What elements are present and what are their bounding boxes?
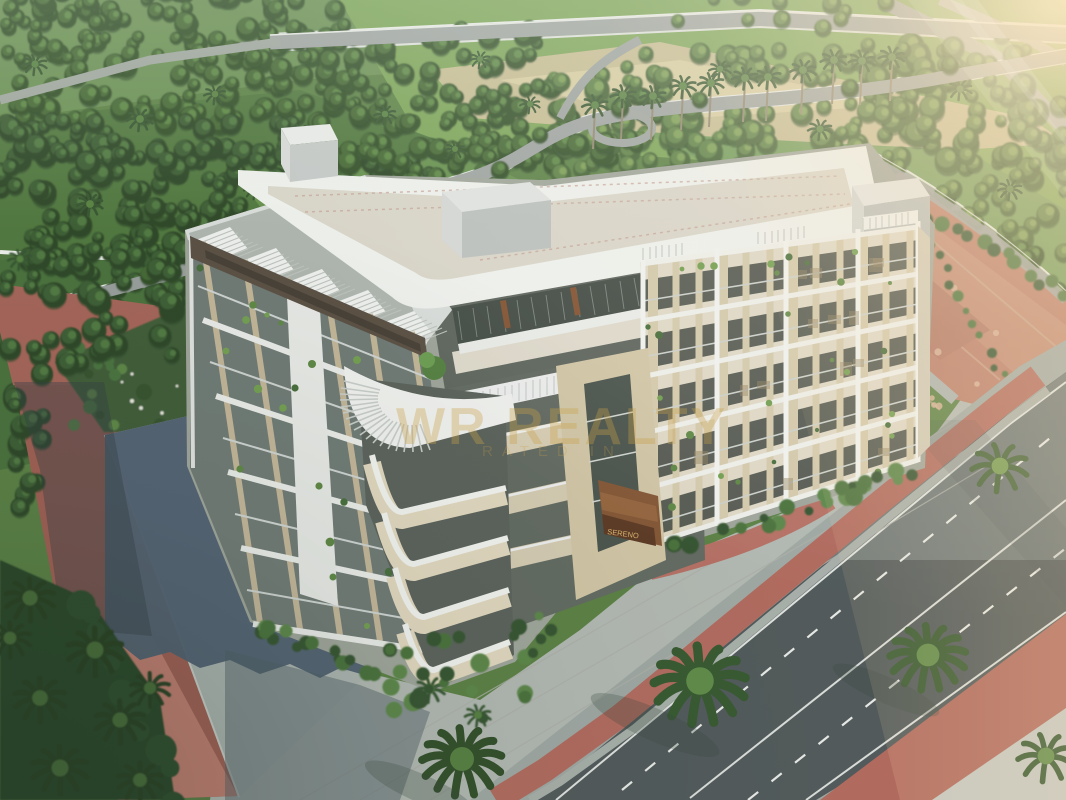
svg-text:RATED IN: RATED IN bbox=[482, 443, 623, 460]
